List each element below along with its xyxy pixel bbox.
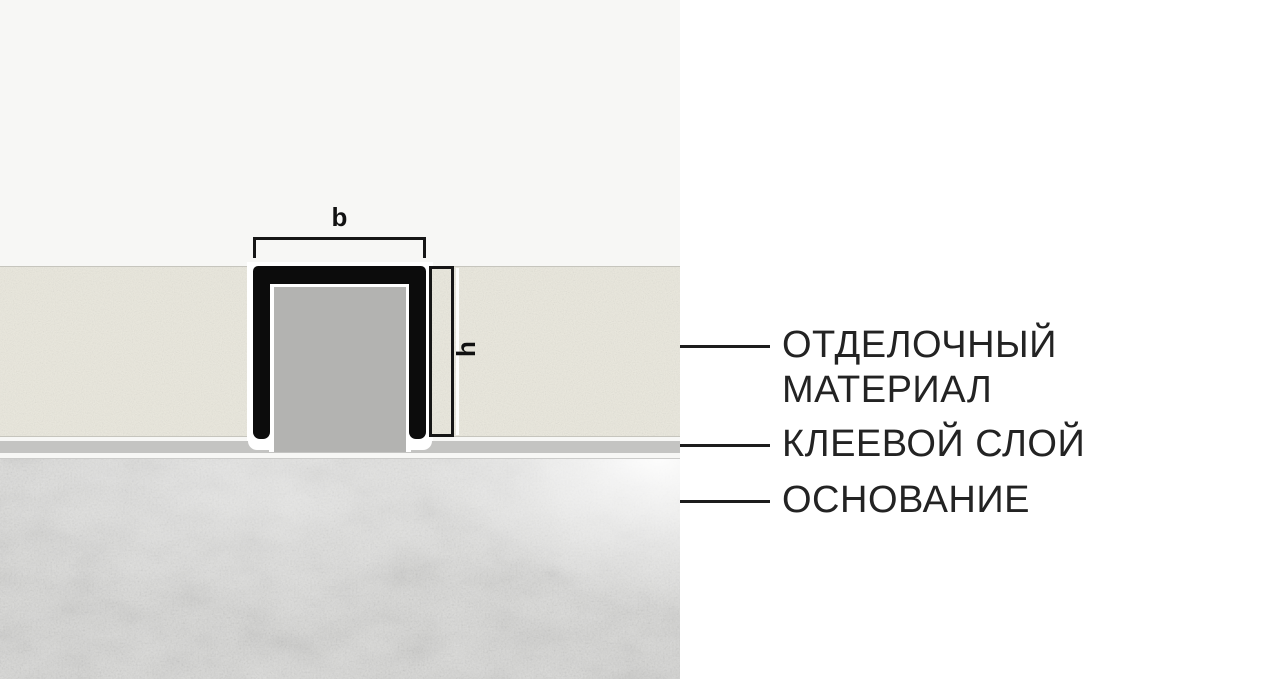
legend-label-adhesive: КЛЕЕВОЙ СЛОЙ [782,422,1085,467]
legend-label-base: ОСНОВАНИЕ [782,478,1030,523]
profile-leg-right [409,280,426,439]
infographic-canvas: b h ОТДЕЛОЧНЫЙ МАТЕРИАЛ КЛЕЕВОЙ СЛОЙ ОСН… [0,0,1280,679]
profile-filler [274,287,406,452]
dimension-label-width: b [253,204,426,230]
finishing-material-left [0,266,249,437]
tile-texture [0,267,248,436]
dimension-bracket-width [253,237,426,258]
callout-line-finishing [680,345,770,348]
base-substrate [0,458,680,679]
legend-label-finishing-line2: МАТЕРИАЛ [782,368,1057,413]
dimension-label-height: h [453,333,479,365]
profile-cross-section-diagram: b h [0,0,680,679]
callout-line-adhesive [680,444,770,447]
legend-label-finishing: ОТДЕЛОЧНЫЙ МАТЕРИАЛ [782,323,1057,413]
callout-line-base [680,500,770,503]
concrete-highlight [0,459,680,679]
legend-label-finishing-line1: ОТДЕЛОЧНЫЙ [782,323,1057,368]
profile-leg-left [253,280,270,439]
profile-inner-gap [269,282,411,452]
profile-top-flange [253,266,426,284]
